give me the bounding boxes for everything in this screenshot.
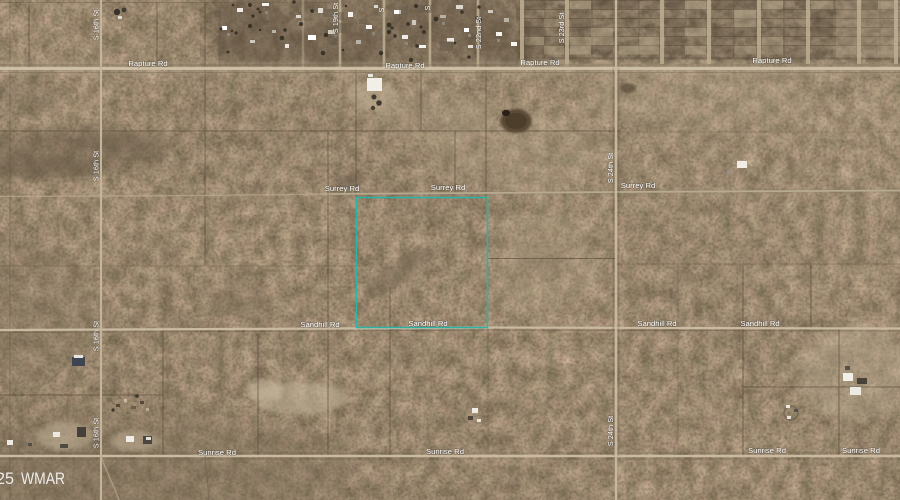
svg-text:S 22nd St: S 22nd St — [474, 17, 483, 49]
svg-text:Surrey Rd: Surrey Rd — [325, 184, 360, 193]
svg-text:S 23rd St: S 23rd St — [557, 13, 566, 44]
svg-text:S 24th St: S 24th St — [606, 416, 615, 446]
svg-text:Sandhill Rd: Sandhill Rd — [637, 319, 676, 328]
svg-text:S 24th St: S 24th St — [606, 153, 615, 183]
svg-text:Sunrise Rd: Sunrise Rd — [426, 447, 464, 456]
svg-text:Surrey Rd: Surrey Rd — [621, 181, 656, 190]
svg-text:S 19th St: S 19th St — [331, 3, 340, 33]
svg-text:Sandhill Rd: Sandhill Rd — [300, 320, 339, 329]
svg-text:Sunrise Rd: Sunrise Rd — [748, 446, 786, 455]
svg-text:WMAR: WMAR — [21, 469, 65, 488]
svg-text:Rapture Rd: Rapture Rd — [385, 61, 424, 70]
svg-text:Rapture Rd: Rapture Rd — [520, 58, 559, 67]
svg-text:Rapture Rd: Rapture Rd — [128, 59, 167, 68]
svg-text:S 16th St: S 16th St — [92, 418, 101, 448]
svg-text:Surrey Rd: Surrey Rd — [431, 183, 466, 192]
svg-text:Sunrise Rd: Sunrise Rd — [842, 446, 880, 455]
svg-text:Sandhill Rd: Sandhill Rd — [740, 319, 779, 328]
svg-text:S 16th St: S 16th St — [92, 151, 101, 181]
svg-text:S 16th St: S 16th St — [92, 10, 101, 40]
svg-text:Sunrise Rd: Sunrise Rd — [198, 448, 236, 457]
svg-text:S: S — [377, 7, 386, 12]
svg-text:Rapture Rd: Rapture Rd — [752, 56, 791, 65]
svg-text:Sandhill Rd: Sandhill Rd — [408, 319, 447, 328]
svg-text:S: S — [423, 5, 432, 10]
svg-text:25: 25 — [0, 469, 14, 488]
svg-text:S 16th St: S 16th St — [92, 321, 101, 351]
